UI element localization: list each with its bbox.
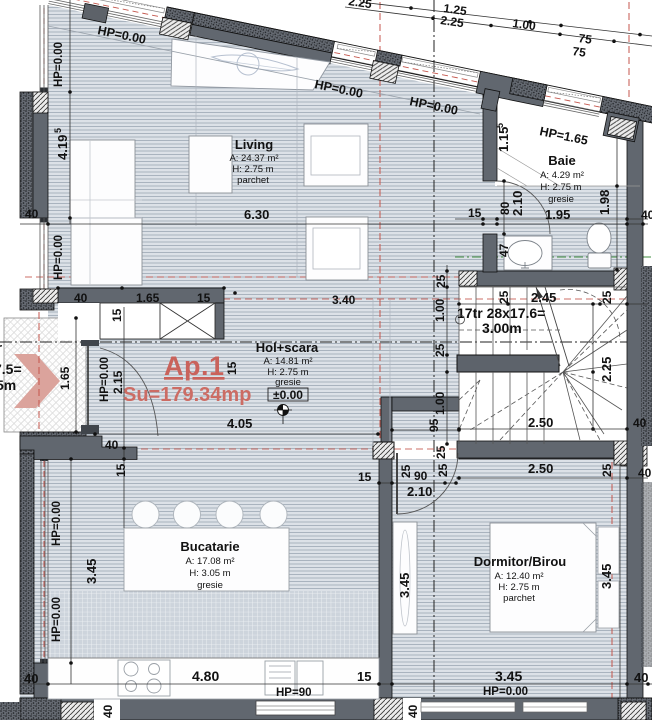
svg-text:40: 40 bbox=[25, 207, 39, 221]
svg-text:4.80: 4.80 bbox=[192, 668, 219, 684]
svg-text:40: 40 bbox=[634, 670, 648, 685]
svg-text:1.65: 1.65 bbox=[136, 291, 160, 305]
svg-text:Hol+scara: Hol+scara bbox=[256, 340, 319, 355]
svg-text:3.45: 3.45 bbox=[84, 559, 99, 584]
svg-text:25: 25 bbox=[436, 463, 450, 477]
svg-text:3.45: 3.45 bbox=[495, 668, 522, 684]
svg-text:1.15: 1.15 bbox=[496, 127, 511, 152]
svg-text:2.15: 2.15 bbox=[111, 370, 125, 394]
svg-text:40: 40 bbox=[101, 704, 115, 718]
svg-text:40: 40 bbox=[638, 466, 652, 480]
svg-text:2.45: 2.45 bbox=[531, 290, 556, 305]
svg-text:4.05: 4.05 bbox=[227, 416, 252, 431]
svg-text:Bucatarie: Bucatarie bbox=[180, 539, 239, 554]
svg-text:15: 15 bbox=[197, 291, 211, 305]
svg-text:gresie: gresie bbox=[548, 194, 574, 205]
svg-text:25: 25 bbox=[434, 274, 448, 288]
svg-text:HP=0.00: HP=0.00 bbox=[53, 42, 65, 87]
svg-text:gresie: gresie bbox=[275, 377, 301, 388]
svg-text:2.10: 2.10 bbox=[510, 191, 525, 216]
svg-text:25: 25 bbox=[600, 463, 614, 477]
svg-text:1.98: 1.98 bbox=[597, 190, 612, 215]
svg-text:5: 5 bbox=[53, 128, 63, 133]
svg-text:A: 24.37 m²: A: 24.37 m² bbox=[229, 153, 278, 164]
svg-text:2.10: 2.10 bbox=[407, 484, 432, 499]
svg-text:6.30: 6.30 bbox=[244, 207, 269, 222]
svg-text:3.00m: 3.00m bbox=[482, 320, 522, 336]
svg-text:15: 15 bbox=[468, 206, 482, 220]
svg-text:25: 25 bbox=[433, 343, 447, 357]
svg-text:25: 25 bbox=[434, 445, 448, 459]
svg-text:3.40: 3.40 bbox=[332, 293, 356, 307]
svg-text:H: 2.75 m: H: 2.75 m bbox=[232, 164, 273, 175]
svg-text:gresie: gresie bbox=[197, 580, 223, 591]
svg-text:parchet: parchet bbox=[237, 175, 269, 186]
svg-text:1.95: 1.95 bbox=[545, 207, 570, 222]
svg-text:HP=0.00: HP=0.00 bbox=[99, 357, 111, 402]
svg-text:HP=90: HP=90 bbox=[276, 687, 311, 699]
svg-text:Baie: Baie bbox=[548, 153, 575, 168]
svg-text:40: 40 bbox=[105, 438, 119, 452]
svg-text:HP=0.00: HP=0.00 bbox=[51, 501, 63, 546]
svg-text:90: 90 bbox=[414, 469, 428, 483]
svg-text:2.25: 2.25 bbox=[599, 357, 614, 382]
svg-text:5: 5 bbox=[495, 123, 505, 128]
svg-text:HP=0.00: HP=0.00 bbox=[53, 235, 65, 280]
svg-text:HP=0.00: HP=0.00 bbox=[51, 597, 63, 642]
svg-text:95: 95 bbox=[427, 418, 441, 432]
svg-text:17tr 28x17.6=: 17tr 28x17.6= bbox=[457, 305, 545, 321]
svg-text:75: 75 bbox=[572, 44, 587, 60]
svg-text:40: 40 bbox=[24, 671, 38, 686]
svg-text:40: 40 bbox=[406, 704, 420, 718]
svg-text:1.00: 1.00 bbox=[433, 391, 447, 415]
svg-text:7.5=: 7.5= bbox=[0, 361, 22, 377]
svg-text:Su=179.34mp: Su=179.34mp bbox=[123, 384, 251, 406]
svg-text:15: 15 bbox=[110, 308, 124, 322]
svg-text:A: 17.08 m²: A: 17.08 m² bbox=[185, 556, 234, 567]
svg-text:1.00: 1.00 bbox=[433, 298, 447, 322]
svg-text:3.45: 3.45 bbox=[599, 564, 614, 589]
svg-text:25: 25 bbox=[600, 290, 614, 304]
svg-text:15: 15 bbox=[225, 361, 239, 375]
svg-text:Dormitor/Birou: Dormitor/Birou bbox=[474, 554, 567, 569]
svg-text:2.50: 2.50 bbox=[528, 415, 553, 430]
svg-text:15: 15 bbox=[114, 463, 128, 477]
svg-text:47: 47 bbox=[497, 243, 511, 257]
svg-text:HP=0.00: HP=0.00 bbox=[483, 686, 528, 698]
svg-text:4.19: 4.19 bbox=[55, 135, 70, 160]
svg-text:3.45: 3.45 bbox=[397, 573, 412, 598]
svg-text:A: 4.29 m²: A: 4.29 m² bbox=[540, 170, 584, 181]
svg-text:A: 12.40 m²: A: 12.40 m² bbox=[494, 571, 543, 582]
svg-text:r: r bbox=[0, 340, 2, 355]
svg-text:25: 25 bbox=[497, 290, 511, 304]
svg-text:5m: 5m bbox=[0, 377, 16, 393]
svg-text:1.65: 1.65 bbox=[58, 366, 72, 390]
svg-text:15: 15 bbox=[357, 669, 371, 684]
svg-text:40: 40 bbox=[74, 291, 88, 305]
svg-text:Ap.1: Ap.1 bbox=[164, 351, 225, 381]
svg-text:Living: Living bbox=[235, 137, 273, 152]
svg-text:H: 2.75 m: H: 2.75 m bbox=[498, 582, 539, 593]
svg-text:40: 40 bbox=[641, 208, 652, 222]
svg-text:15: 15 bbox=[358, 470, 372, 484]
svg-text:H: 3.05 m: H: 3.05 m bbox=[189, 568, 230, 579]
svg-text:25: 25 bbox=[399, 464, 413, 478]
svg-text:H: 2.75 m: H: 2.75 m bbox=[540, 182, 581, 193]
svg-text:A: 14.81 m²: A: 14.81 m² bbox=[263, 356, 312, 367]
svg-text:parchet: parchet bbox=[503, 593, 535, 604]
svg-text:40: 40 bbox=[633, 416, 647, 430]
svg-text:±0.00: ±0.00 bbox=[273, 388, 303, 402]
svg-text:2.50: 2.50 bbox=[528, 461, 553, 476]
